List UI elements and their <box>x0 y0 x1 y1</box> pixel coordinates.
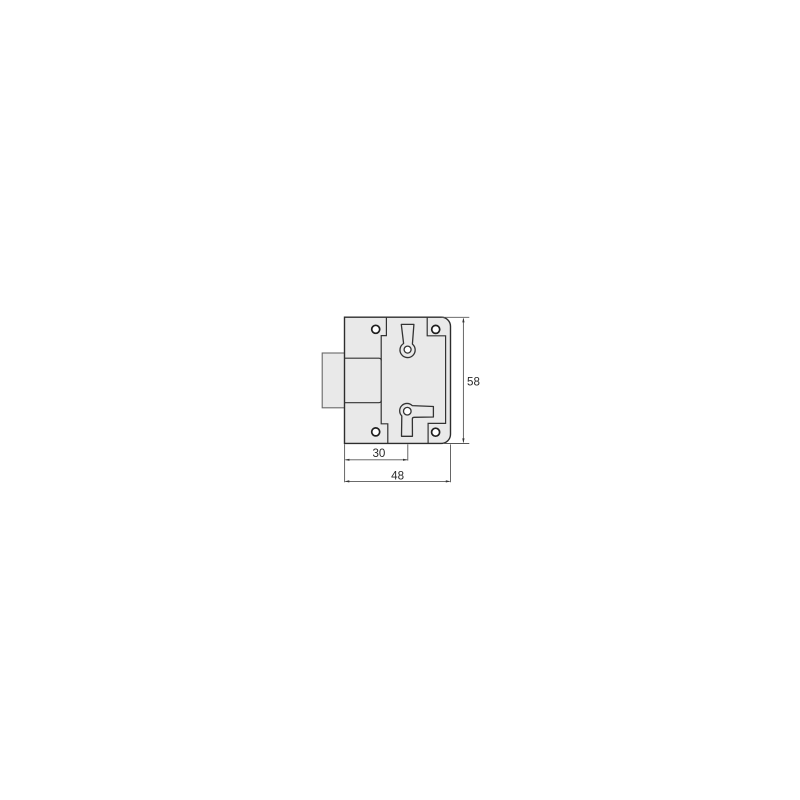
svg-text:30: 30 <box>372 447 385 460</box>
svg-text:48: 48 <box>391 469 404 482</box>
svg-text:58: 58 <box>467 376 480 389</box>
